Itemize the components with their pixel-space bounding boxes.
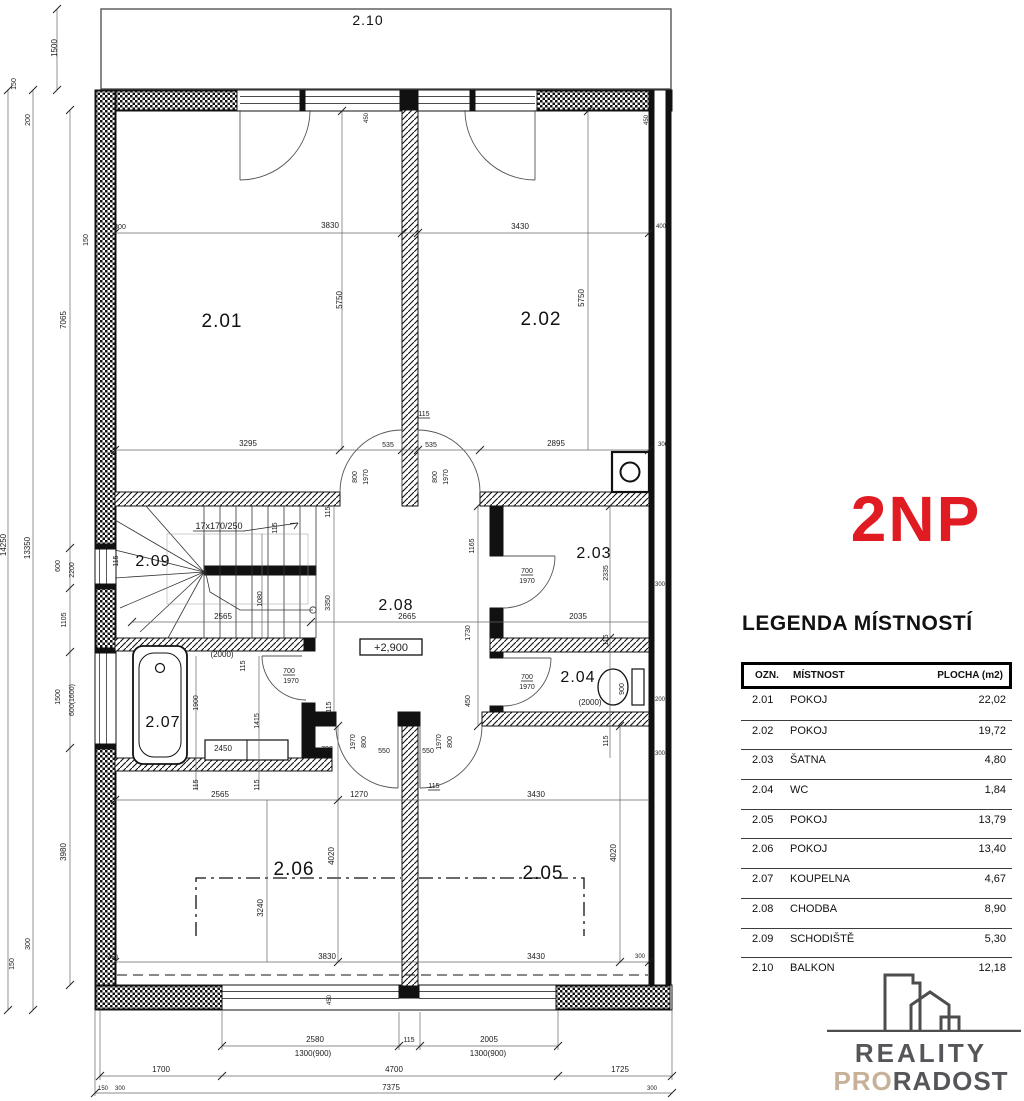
legend-cell-ozn: 2.04 [752, 784, 790, 796]
dim-label: 300 [25, 938, 32, 950]
legend-row: 2.06POKOJ13,40 [741, 838, 1012, 868]
legend-cell-plocha: 13,40 [916, 843, 1006, 855]
legend-cell-plocha: 22,02 [916, 694, 1006, 706]
dim-label: 1970 [283, 678, 299, 685]
legend-heading: LEGENDA MÍSTNOSTÍ [742, 612, 973, 636]
logo-buildings-icon [821, 960, 1021, 1032]
dim-label: 150 [83, 234, 90, 246]
legend-col-plocha: PLOCHA (m2) [913, 670, 1003, 681]
dim-label: 300 [655, 582, 666, 588]
dim-label: 115 [325, 506, 332, 517]
legend-row: 2.07KOUPELNA4,67 [741, 868, 1012, 898]
room-label: 2.09 [135, 553, 170, 570]
dim-label: 115 [603, 735, 610, 746]
dim-label: 1900 [193, 695, 200, 711]
dim-label: 1415 [254, 713, 261, 729]
dim-label: 1105 [61, 612, 68, 627]
dim-label: 115 [418, 411, 429, 418]
legend-row: 2.04WC1,84 [741, 779, 1012, 809]
legend-table: OZN. MÍSTNOST PLOCHA (m2) 2.01POKOJ22,02… [741, 662, 1012, 987]
legend-cell-ozn: 2.10 [752, 962, 790, 974]
dim-label: 3980 [59, 843, 68, 861]
dim-label: 720 [321, 746, 333, 753]
dim-label: 300 [115, 1086, 126, 1092]
legend-row: 2.08CHODBA8,90 [741, 898, 1012, 928]
dim-label: 5750 [577, 289, 586, 307]
room-label: 2.06 [274, 859, 315, 880]
interior-walls [115, 110, 649, 986]
legend-cell-plocha: 13,79 [916, 814, 1006, 826]
dim-label: 600 [55, 560, 62, 572]
dim-label: 300 [647, 1086, 658, 1092]
dim-label: 450 [108, 955, 119, 961]
room-label: 2.05 [523, 863, 564, 884]
room-label: 2.07 [145, 714, 180, 731]
dim-label: 3830 [321, 221, 339, 230]
dim-label: 7375 [382, 1083, 400, 1092]
room-label: 2.04 [560, 669, 595, 686]
dim-label: 14250 [0, 533, 8, 556]
room-label: 2.01 [202, 311, 243, 332]
dim-label: 1970 [363, 469, 370, 485]
dim-label: 2565 [211, 790, 229, 799]
dim-label: (2000) [210, 650, 233, 659]
dim-label: 3240 [256, 899, 265, 917]
dim-label: 1300(900) [295, 1049, 332, 1058]
dim-label: 2005 [480, 1035, 498, 1044]
dim-label: 800 [352, 471, 359, 483]
legend-cell-mistnost: CHODBA [790, 903, 916, 915]
room-label: 2.08 [378, 597, 413, 614]
dim-label: 115 [326, 701, 333, 712]
dim-label: (2000) [578, 698, 601, 707]
dim-label: 2335 [603, 565, 610, 581]
dim-label: 4020 [609, 844, 618, 862]
legend-cell-mistnost: POKOJ [790, 843, 916, 855]
legend-cell-ozn: 2.01 [752, 694, 790, 706]
dim-label: 3830 [318, 952, 336, 961]
dim-label: 300 [655, 751, 666, 757]
dim-label: 150 [98, 1086, 109, 1092]
dim-label: 3430 [527, 790, 545, 799]
door-arcs [240, 110, 555, 788]
dim-label: 1970 [350, 734, 357, 750]
legend-cell-plocha: 1,84 [916, 784, 1006, 796]
legend-cell-ozn: 2.09 [752, 933, 790, 945]
dim-label: 17x170/250 [195, 521, 242, 531]
legend-cell-plocha: 4,80 [916, 754, 1006, 766]
room-label: 2.10 [352, 12, 383, 28]
dim-label: 13350 [23, 536, 32, 559]
dim-label: 115 [240, 660, 247, 671]
legend-cell-ozn: 2.07 [752, 873, 790, 885]
floor-plan: 1500150200706515014250133506002200110515… [0, 0, 740, 1101]
dim-label: 4700 [385, 1065, 403, 1074]
dim-label: 1725 [611, 1065, 629, 1074]
dim-label: 4020 [327, 847, 336, 865]
dim-label: 3430 [511, 222, 529, 231]
legend-row: 2.03ŠATNA4,80 [741, 749, 1012, 779]
legend-cell-ozn: 2.03 [752, 754, 790, 766]
legend-cell-plocha: 4,67 [916, 873, 1006, 885]
dim-label: 450 [327, 994, 333, 1005]
dim-label: 115 [403, 1037, 414, 1044]
legend-cell-mistnost: POKOJ [790, 725, 916, 737]
legend-row: 2.05POKOJ13,79 [741, 809, 1012, 839]
dim-label: 1080 [257, 591, 264, 607]
dim-label: 300 [658, 442, 669, 448]
logo-word-reality: REALITY [821, 1039, 1021, 1067]
dim-label: 700 [521, 674, 533, 681]
dim-label: 115 [603, 634, 610, 645]
room-label: 2.02 [521, 309, 562, 330]
legend-row: 2.09SCHODIŠTĚ5,30 [741, 928, 1012, 958]
dim-label: 115 [428, 783, 439, 790]
dim-label: 2580 [306, 1035, 324, 1044]
dim-label: 2035 [569, 612, 587, 621]
dim-label: 1270 [350, 790, 368, 799]
dim-label: 1730 [465, 625, 472, 641]
logo-word-proradost: PRORADOST [821, 1067, 1021, 1095]
dim-label: 400 [656, 224, 667, 230]
legend-header: OZN. MÍSTNOST PLOCHA (m2) [741, 662, 1012, 689]
dim-label: 1970 [443, 469, 450, 485]
dim-label: 535 [425, 442, 437, 449]
dim-label: 2895 [547, 439, 565, 448]
dim-label: 1165 [469, 538, 476, 553]
legend-cell-mistnost: POKOJ [790, 694, 916, 706]
balcony-outline [101, 9, 671, 89]
dim-label: 200 [25, 114, 32, 126]
dim-label: 800 [447, 736, 454, 748]
ceiling-break-lines [117, 878, 648, 975]
legend-cell-ozn: 2.06 [752, 843, 790, 855]
dim-label: 2200 [69, 562, 76, 578]
logo-word-radost: RADOST [893, 1066, 1009, 1096]
dim-label: 150 [9, 958, 16, 970]
dim-label: 2450 [214, 744, 232, 753]
dim-label: 3350 [325, 595, 332, 611]
legend-cell-mistnost: SCHODIŠTĚ [790, 933, 916, 945]
dim-label: 1700 [152, 1065, 170, 1074]
legend-cell-ozn: 2.02 [752, 725, 790, 737]
legend-col-ozn: OZN. [755, 670, 793, 681]
agency-logo: REALITY PRORADOST [821, 960, 1021, 1095]
dim-label: 1970 [519, 684, 535, 691]
bathtub-icon [133, 646, 187, 764]
legend-rows: 2.01POKOJ22,022.02POKOJ19,722.03ŠATNA4,8… [741, 690, 1012, 987]
floor-title: 2NP [806, 482, 1024, 556]
dim-label: +2,900 [374, 642, 408, 654]
dim-label: 1300(900) [470, 1049, 507, 1058]
dim-label: 115 [193, 779, 200, 790]
legend-cell-mistnost: WC [790, 784, 916, 796]
dim-label: 900 [619, 683, 626, 695]
legend-row: 2.01POKOJ22,02 [741, 690, 1012, 720]
dim-label: 550 [422, 748, 434, 755]
dim-label: 700 [283, 668, 295, 675]
dim-label: 600(1600) [69, 684, 76, 716]
dim-label: 3430 [527, 952, 545, 961]
dim-label: 115 [272, 522, 279, 533]
legend-cell-plocha: 19,72 [916, 725, 1006, 737]
dim-label: 150 [11, 78, 18, 90]
dim-label: 800 [432, 471, 439, 483]
legend-cell-plocha: 8,90 [916, 903, 1006, 915]
dim-label: 700 [521, 568, 533, 575]
legend-cell-mistnost: ŠATNA [790, 754, 916, 766]
dim-label: 3295 [239, 439, 257, 448]
legend-row: 2.02POKOJ19,72 [741, 720, 1012, 750]
dim-label: 115 [254, 779, 261, 790]
dim-label: 7065 [59, 311, 68, 329]
dim-label: 200 [655, 697, 666, 703]
dim-label: 2565 [214, 612, 232, 621]
dim-label: 1500 [50, 39, 59, 57]
dim-label: 450 [364, 112, 370, 123]
legend-cell-ozn: 2.05 [752, 814, 790, 826]
room-label: 2.03 [576, 545, 611, 562]
dim-label: 450 [644, 114, 650, 125]
chimney-icon [612, 452, 649, 492]
legend-cell-mistnost: KOUPELNA [790, 873, 916, 885]
dim-label: 550 [378, 748, 390, 755]
logo-word-pro: PRO [833, 1066, 892, 1096]
dim-label: 5750 [335, 291, 344, 309]
legend-cell-ozn: 2.08 [752, 903, 790, 915]
dim-label: 800 [361, 736, 368, 748]
dim-label: 1500 [55, 689, 62, 705]
legend-cell-mistnost: POKOJ [790, 814, 916, 826]
dim-label: 1970 [519, 578, 535, 585]
dim-label: 300 [635, 954, 646, 960]
dim-label: 1970 [436, 734, 443, 750]
dim-label: 535 [382, 442, 394, 449]
dim-label: 115 [113, 555, 120, 566]
dim-label: 450 [465, 695, 472, 707]
dim-label: 300 [114, 224, 126, 231]
legend-col-mistnost: MÍSTNOST [793, 670, 913, 681]
legend-cell-plocha: 5,30 [916, 933, 1006, 945]
